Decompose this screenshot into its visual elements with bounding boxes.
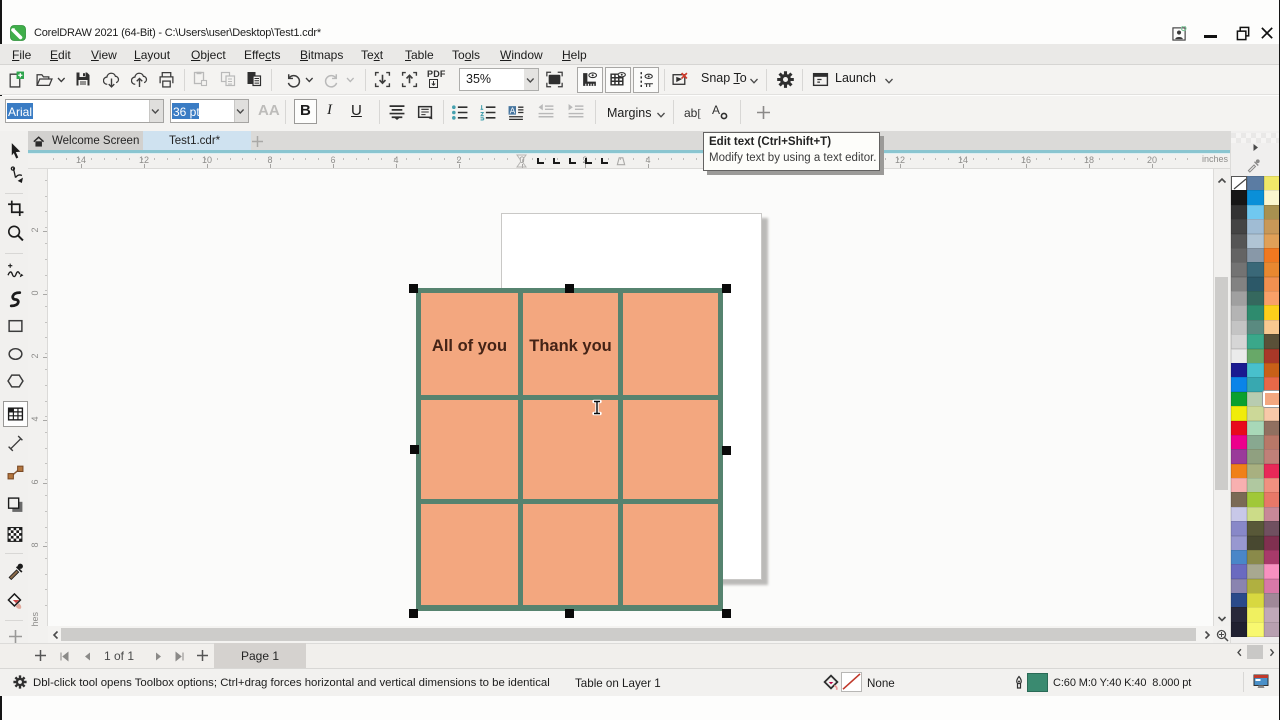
svg-text:A: A: [510, 106, 516, 116]
